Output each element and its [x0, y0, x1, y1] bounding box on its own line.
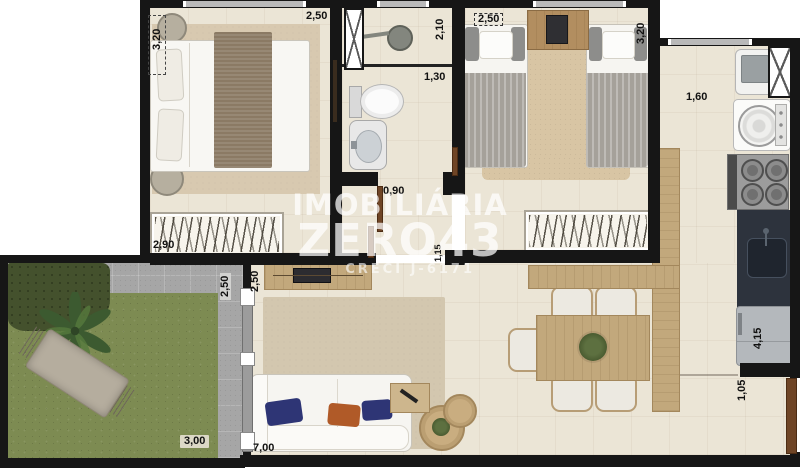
wall-bedroom2-bottom	[455, 250, 660, 263]
kitchen-window	[668, 39, 752, 45]
washing-machine	[733, 99, 791, 151]
wall-fridge-stub	[740, 363, 795, 377]
kitchen-duct-shaft	[768, 46, 792, 98]
tank-basin	[741, 55, 769, 83]
burner	[741, 183, 764, 206]
headboard-cushion	[465, 27, 479, 61]
dining-chair	[595, 378, 637, 412]
dim-living-width: 7,00	[253, 443, 274, 454]
remote-control	[400, 389, 419, 404]
dim-bedroom1-wardrobe: 2,90	[153, 240, 174, 251]
toilet-bowl	[360, 84, 404, 119]
sliding-door-handle-mid	[240, 352, 255, 366]
nightstand-object	[546, 15, 568, 44]
wall-bedroom1-right	[330, 0, 342, 263]
burner	[741, 159, 764, 182]
dining-chair	[551, 378, 593, 412]
hall-door-leaf	[368, 226, 374, 258]
table-plant	[579, 333, 607, 361]
refrigerator	[736, 306, 794, 366]
dim-living-left-wall: 2,50	[250, 271, 261, 292]
burner	[765, 183, 788, 206]
throw-pillow-blue	[265, 398, 304, 427]
bed-blanket	[214, 32, 272, 168]
washer-drum	[738, 105, 780, 147]
bedroom2-door-leaf	[452, 147, 458, 176]
floor-plan: 3,20 2,50 2,90 2,10 1,30 0,90 2,50 3,20 …	[0, 0, 800, 470]
kids-nightstand	[527, 10, 589, 50]
dim-hall-opening: 1,15	[434, 244, 443, 262]
dim-entry-passage: 1,05	[737, 380, 748, 401]
sofa-backrest	[253, 425, 409, 450]
kitchen-sink	[747, 238, 787, 278]
single-bed-left	[462, 24, 528, 168]
shower-head	[387, 25, 413, 51]
washer-panel	[775, 104, 787, 146]
throw-pillow-orange	[327, 403, 361, 428]
pillow	[479, 31, 513, 59]
kitchen-faucet-spout	[765, 232, 767, 246]
stove-cooktop	[727, 154, 789, 210]
dim-kitchen-depth: 4,15	[753, 328, 764, 349]
stove-edge	[728, 155, 737, 209]
dim-bedroom2-depth: 3,20	[636, 23, 647, 44]
dim-garden-width: 3,00	[180, 435, 209, 448]
headboard-cushion	[511, 27, 525, 61]
wall-bathroom-bottom	[342, 172, 378, 186]
side-table	[390, 383, 430, 413]
dining-table	[536, 315, 650, 381]
bedroom2-window	[533, 1, 626, 7]
bathroom-sink	[349, 120, 387, 170]
tv-console	[264, 263, 372, 290]
dim-bathroom-depth: 2,10	[435, 19, 446, 40]
bed-pillow-2	[156, 108, 185, 161]
coffee-table-small	[443, 394, 477, 428]
dark-counter	[737, 210, 795, 308]
wall-bottom	[240, 455, 800, 467]
dim-bedroom1-depth: 3,20	[152, 29, 163, 50]
sink-basin	[355, 130, 382, 163]
bedroom1-window	[183, 1, 306, 7]
fridge-handle	[738, 313, 742, 335]
throw-pillow-blue	[361, 399, 392, 421]
striped-blanket	[586, 73, 648, 167]
dining-counter	[528, 265, 680, 289]
striped-blanket	[462, 73, 526, 167]
dim-bedroom1-width: 2,50	[306, 11, 327, 22]
bed-seam	[189, 43, 190, 167]
wall-garden-bottom	[0, 458, 245, 468]
dim-bedroom2-width: 2,50	[474, 13, 503, 26]
dim-bathroom-width: 1,30	[424, 72, 445, 83]
kids-rug-vertical	[528, 42, 586, 170]
bathroom-duct-shaft	[344, 8, 364, 70]
sink-faucet	[351, 141, 357, 149]
wardrobe-bedroom2	[524, 210, 652, 252]
bathroom-window	[377, 1, 429, 7]
entry-door-leaf	[786, 378, 797, 454]
wall-garden-left	[0, 255, 8, 468]
tv-stand-line	[273, 275, 363, 276]
burner	[765, 159, 788, 182]
dim-bathroom-door: 0,90	[383, 186, 404, 197]
single-bed-right	[586, 24, 650, 168]
pillow	[602, 31, 635, 59]
dim-kitchen-width: 1,60	[686, 92, 707, 103]
headboard-cushion	[589, 27, 602, 61]
wall-garden-top	[0, 255, 245, 263]
sliding-door-track	[242, 288, 253, 452]
kitchen-living-boundary	[678, 374, 738, 376]
wardrobe-hatch	[529, 215, 647, 247]
fridge-seam	[737, 341, 793, 342]
bedroom1-door-leaf	[333, 60, 337, 122]
dim-garden-depth: 2,50	[220, 273, 231, 300]
